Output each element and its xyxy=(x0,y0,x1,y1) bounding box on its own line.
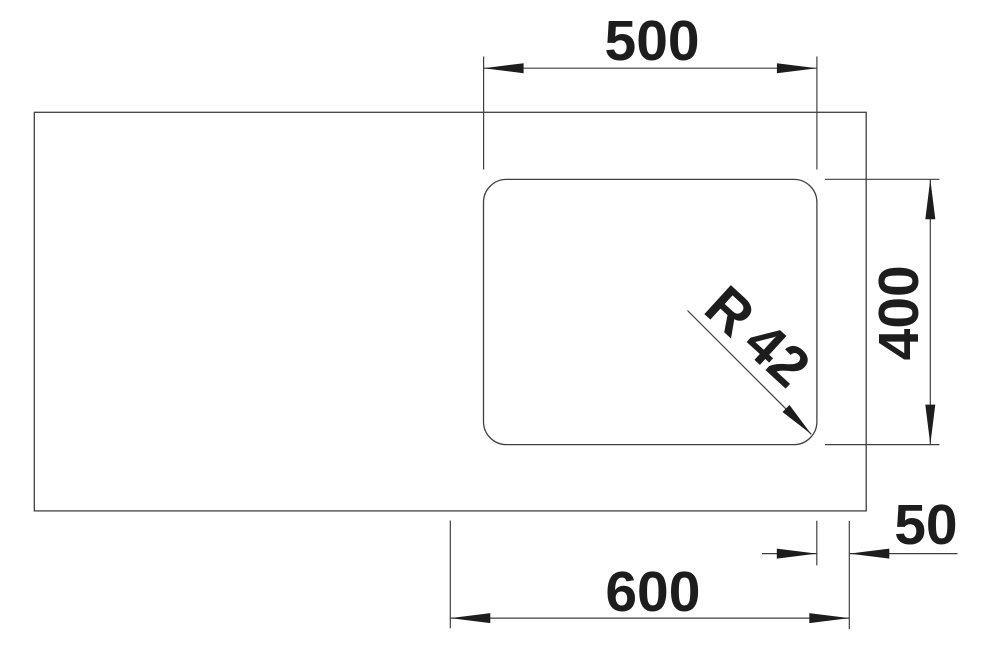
svg-text:500: 500 xyxy=(605,9,700,73)
svg-text:400: 400 xyxy=(867,265,931,360)
svg-text:600: 600 xyxy=(605,560,700,624)
svg-text:50: 50 xyxy=(894,493,957,557)
